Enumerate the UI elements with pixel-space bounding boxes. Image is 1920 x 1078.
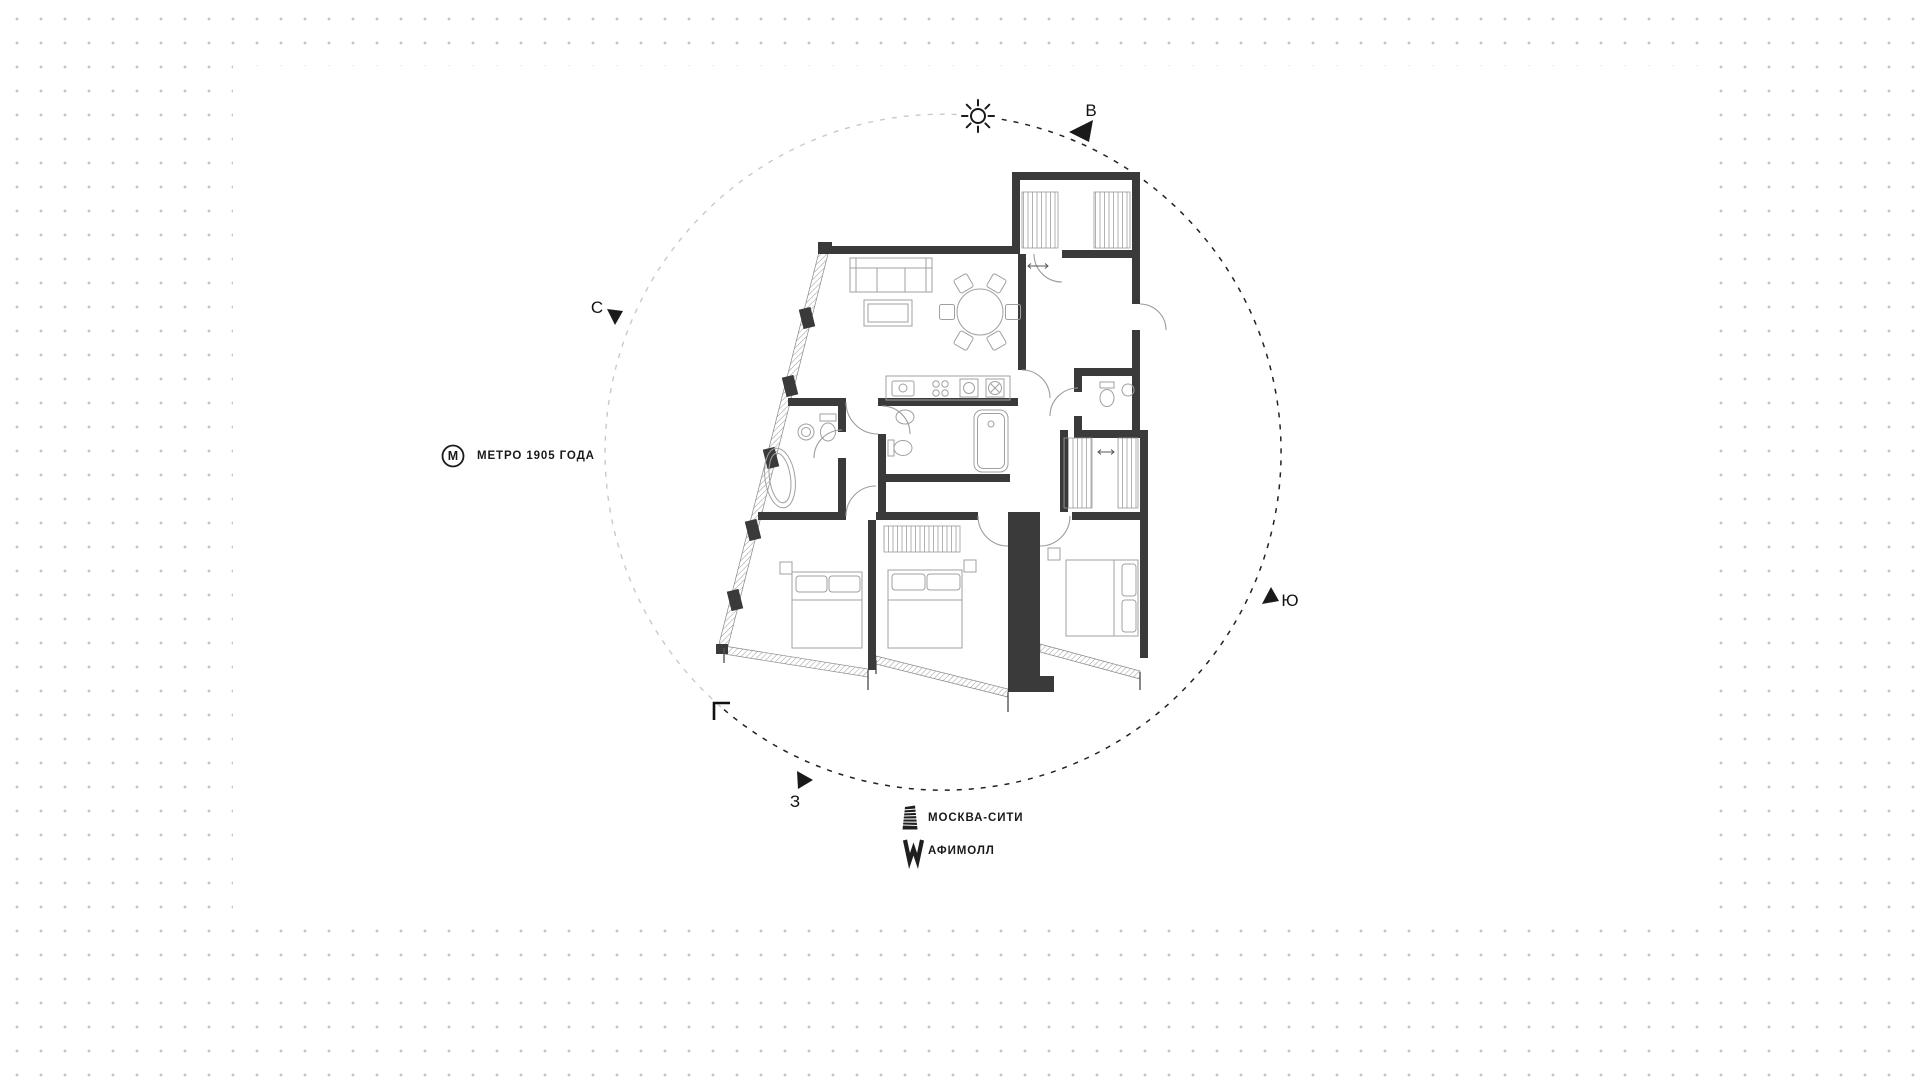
north-arrow-icon — [607, 309, 623, 325]
east-arrow-icon — [1069, 120, 1093, 142]
apartment-plan — [716, 172, 1166, 712]
page-background: { "compass": { "north": "С", "east": "В"… — [0, 0, 1920, 1078]
door-width-markers — [1028, 264, 1114, 455]
kitchen-counter — [886, 376, 1010, 400]
afimall-label: АФИМОЛЛ — [928, 845, 995, 857]
moscow-city-label: МОСКВА-СИТИ — [928, 812, 1023, 824]
corner-mark — [714, 703, 730, 720]
south-arrow-icon — [1262, 587, 1279, 604]
compass-arrows — [607, 120, 1279, 789]
compass-label-north: С — [586, 298, 608, 318]
afimall-w-icon — [905, 840, 922, 861]
metro-monogram: М — [444, 449, 462, 463]
living-room-furniture — [850, 258, 1021, 351]
west-arrow-icon — [797, 771, 813, 789]
bedroom-furniture — [780, 548, 1138, 648]
metro-label: МЕТРО 1905 ГОДА — [477, 450, 595, 462]
sun-icon — [958, 96, 998, 136]
floor-plan-svg — [0, 0, 1920, 1078]
tower-icon — [903, 806, 918, 830]
walls — [758, 172, 1148, 692]
compass-label-south: Ю — [1279, 591, 1301, 611]
orientation-circle — [605, 114, 1281, 790]
compass-label-west: З — [784, 792, 806, 812]
compass-label-east: В — [1080, 101, 1102, 121]
